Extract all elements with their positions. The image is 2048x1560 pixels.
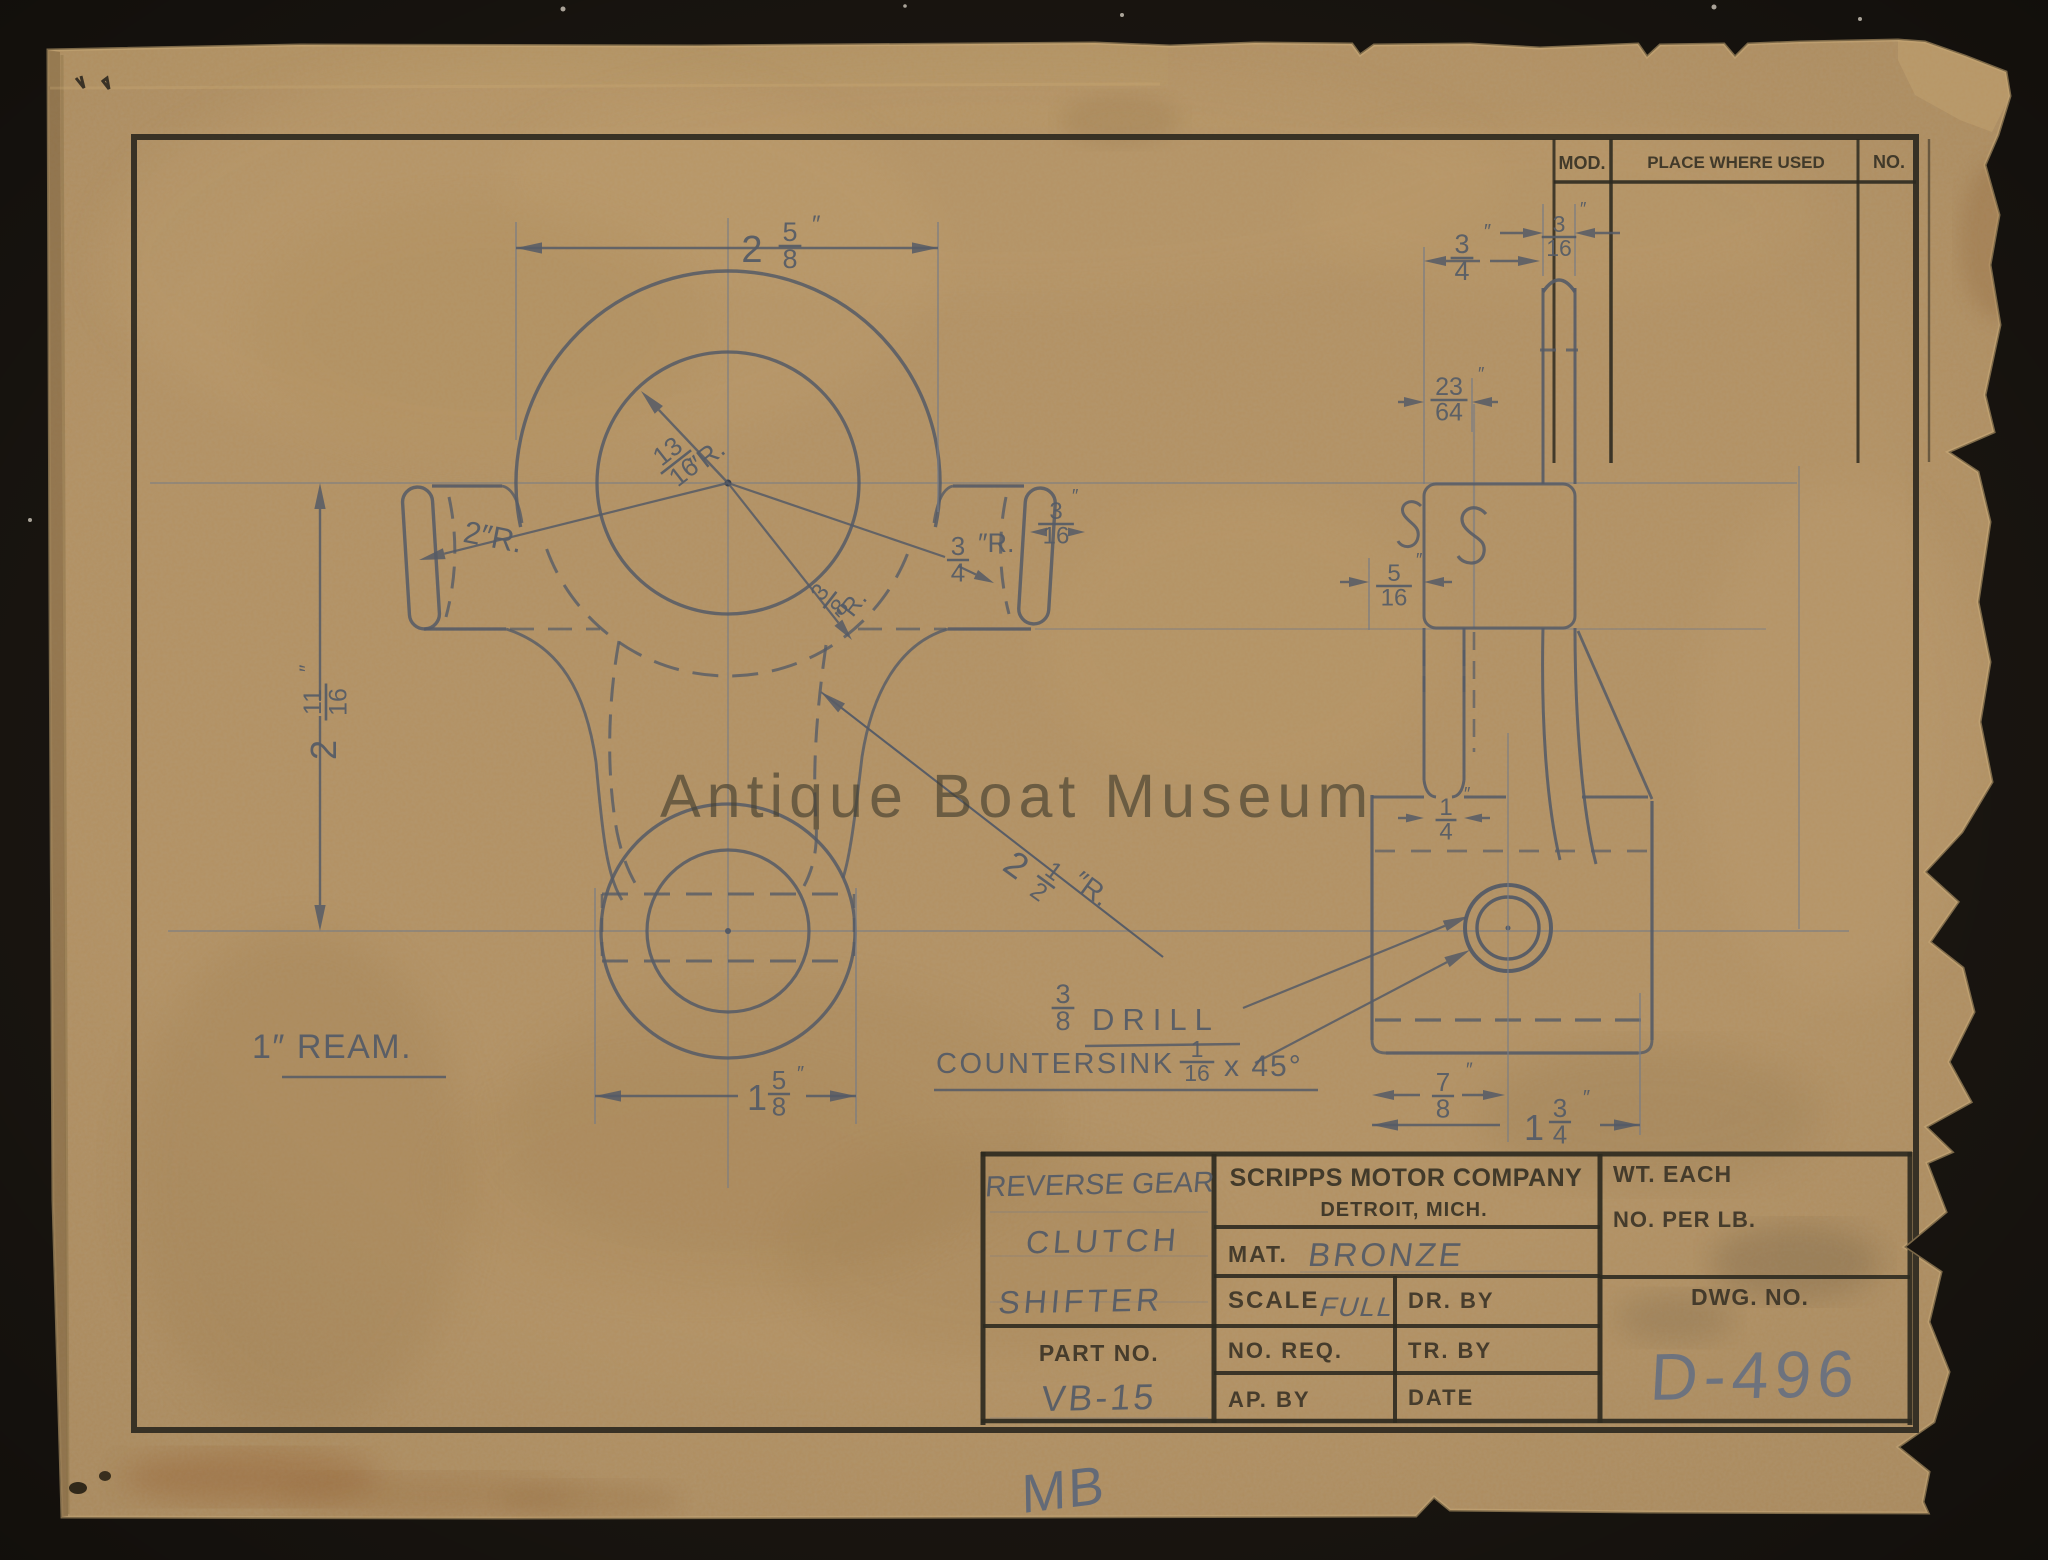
svg-text:4: 4	[1454, 256, 1469, 286]
svg-text:VB-15: VB-15	[1040, 1376, 1159, 1419]
svg-text:″: ″	[1072, 486, 1079, 506]
svg-text:1: 1	[1191, 1036, 1204, 1062]
svg-text:NO. REQ.: NO. REQ.	[1228, 1338, 1343, 1363]
svg-text:SCRIPPS MOTOR COMPANY: SCRIPPS MOTOR COMPANY	[1230, 1164, 1583, 1192]
svg-text:″: ″	[1484, 221, 1491, 243]
svg-text:1: 1	[747, 1077, 767, 1118]
svg-text:1: 1	[1524, 1107, 1544, 1148]
svg-text:NO. PER LB.: NO. PER LB.	[1613, 1207, 1756, 1232]
svg-text:″: ″	[812, 211, 821, 238]
svg-text:23: 23	[1435, 373, 1463, 401]
svg-text:8: 8	[1055, 1006, 1070, 1036]
svg-text:DRILL: DRILL	[1092, 1002, 1220, 1037]
svg-text:D-496: D-496	[1648, 1337, 1862, 1415]
svg-text:MOD.: MOD.	[1559, 153, 1606, 173]
svg-text:16: 16	[325, 688, 353, 716]
svg-text:2: 2	[303, 740, 344, 760]
svg-text:5: 5	[782, 217, 797, 247]
svg-text:COUNTERSINK: COUNTERSINK	[936, 1048, 1175, 1080]
svg-text:8: 8	[772, 1091, 786, 1121]
svg-text:2: 2	[741, 229, 762, 271]
svg-text:4: 4	[1439, 819, 1452, 846]
svg-text:″R.: ″R.	[978, 528, 1015, 558]
svg-text:DWG. NO.: DWG. NO.	[1691, 1284, 1809, 1310]
svg-text:PLACE WHERE USED: PLACE WHERE USED	[1647, 153, 1825, 172]
svg-text:x 45°: x 45°	[1224, 1050, 1303, 1083]
svg-text:″: ″	[1466, 1060, 1473, 1081]
svg-text:TR. BY: TR. BY	[1408, 1338, 1492, 1363]
svg-text:16: 16	[1184, 1060, 1210, 1086]
svg-text:8: 8	[782, 244, 797, 274]
svg-text:SCALE: SCALE	[1228, 1287, 1319, 1314]
svg-text:3: 3	[1049, 498, 1062, 525]
svg-text:NO.: NO.	[1873, 152, 1905, 172]
svg-text:″: ″	[1583, 1087, 1590, 1109]
svg-text:4: 4	[951, 557, 965, 587]
svg-text:PART NO.: PART NO.	[1039, 1340, 1159, 1366]
svg-text:″: ″	[296, 664, 319, 672]
svg-text:″: ″	[797, 1063, 804, 1085]
svg-text:16: 16	[1381, 585, 1408, 612]
svg-text:1″ REAM.: 1″ REAM.	[252, 1028, 412, 1066]
svg-text:11: 11	[299, 689, 327, 715]
svg-text:BRONZE: BRONZE	[1306, 1237, 1467, 1274]
svg-text:WT. EACH: WT. EACH	[1613, 1161, 1732, 1187]
svg-text:DETROIT, MICH.: DETROIT, MICH.	[1320, 1199, 1487, 1221]
svg-text:MB: MB	[1021, 1455, 1106, 1526]
svg-text:Antique Boat Museum: Antique Boat Museum	[660, 762, 1374, 830]
svg-text:64: 64	[1435, 399, 1463, 427]
svg-text:″: ″	[1580, 199, 1587, 219]
svg-text:DR. BY: DR. BY	[1408, 1288, 1495, 1313]
svg-text:MAT.: MAT.	[1228, 1241, 1288, 1267]
svg-text:3: 3	[1055, 979, 1070, 1009]
svg-text:REVERSE GEAR: REVERSE GEAR	[984, 1167, 1215, 1204]
svg-text:16: 16	[1546, 235, 1572, 261]
svg-text:5: 5	[1387, 560, 1400, 587]
svg-text:″: ″	[1464, 784, 1471, 804]
svg-text:8: 8	[1436, 1093, 1450, 1123]
svg-text:″: ″	[1478, 364, 1485, 384]
svg-text:″: ″	[1416, 550, 1423, 570]
svg-text:1: 1	[1439, 794, 1452, 821]
svg-text:CLUTCH: CLUTCH	[1025, 1222, 1182, 1261]
svg-text:SHIFTER: SHIFTER	[997, 1282, 1165, 1321]
svg-text:DATE: DATE	[1408, 1385, 1474, 1410]
svg-text:AP. BY: AP. BY	[1228, 1387, 1311, 1412]
svg-text:3: 3	[1454, 229, 1469, 259]
svg-text:4: 4	[1553, 1119, 1567, 1149]
svg-text:FULL: FULL	[1316, 1291, 1399, 1321]
svg-text:3: 3	[1553, 211, 1566, 237]
